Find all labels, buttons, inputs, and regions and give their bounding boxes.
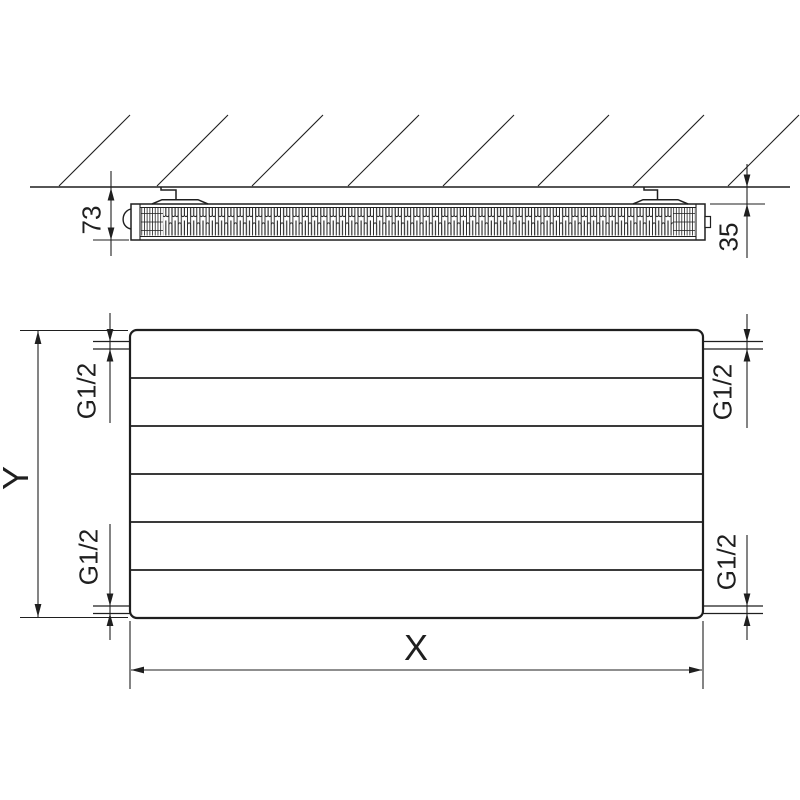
- connection-dimension-bottom-left: G1/2: [74, 524, 114, 640]
- connection-dimension-top-right: G1/2: [708, 314, 751, 428]
- arrow-up-icon: [35, 331, 42, 344]
- right-end-connection-tab: [705, 217, 711, 228]
- stub-top-left: [93, 342, 130, 350]
- arrow-down-icon: [744, 594, 751, 607]
- side-view: 73 35: [30, 115, 799, 258]
- radiator-technical-drawing: 73 35 G1/2: [0, 0, 800, 800]
- arrow-left-icon: [131, 667, 144, 674]
- dimension-wall-distance-35: 35: [710, 164, 765, 258]
- stub-bottom-right: [703, 606, 763, 614]
- thread-size-label: G1/2: [712, 534, 742, 590]
- hatch-lines: [59, 115, 799, 186]
- stub-top-right: [703, 342, 763, 350]
- dimension-width-x: X: [130, 621, 703, 689]
- arrow-right-icon: [689, 667, 702, 674]
- thread-size-label: G1/2: [72, 363, 102, 419]
- arrow-up-icon: [744, 614, 751, 627]
- dimension-height-y: Y: [0, 331, 128, 618]
- width-value: X: [404, 627, 428, 668]
- convector-fins: [141, 208, 695, 236]
- wall-hatching: [30, 115, 799, 187]
- arrow-down-icon: [744, 175, 751, 188]
- dimension-depth-73: 73: [77, 171, 129, 256]
- mounting-bracket-right: [633, 187, 688, 204]
- arrow-down-icon: [744, 329, 751, 342]
- arrow-up-icon: [744, 204, 751, 217]
- height-value: Y: [0, 466, 36, 490]
- end-fin-grid-right: [673, 208, 695, 236]
- depth-value: 73: [77, 206, 107, 235]
- arrow-down-icon: [107, 594, 114, 607]
- arrow-up-icon: [744, 349, 751, 362]
- thread-size-label: G1/2: [74, 529, 104, 585]
- arrow-up-icon: [108, 188, 115, 201]
- front-view: G1/2 G1/2 G1/2 G1/2 Y: [0, 313, 763, 689]
- end-fin-grid-left: [141, 208, 163, 236]
- mounting-bracket-left: [152, 187, 208, 204]
- left-end-bulge: [123, 209, 131, 229]
- arrow-up-icon: [107, 349, 114, 362]
- drawing-svg: 73 35 G1/2: [0, 0, 800, 800]
- arrow-down-icon: [108, 228, 115, 241]
- wall-distance-value: 35: [714, 223, 744, 252]
- radiator-body-front-view: [130, 330, 703, 618]
- connection-dimension-bottom-right: G1/2: [712, 534, 751, 640]
- arrow-up-icon: [107, 614, 114, 627]
- stub-bottom-left: [93, 606, 130, 614]
- thread-size-label: G1/2: [708, 364, 738, 420]
- arrow-down-icon: [35, 604, 42, 617]
- radiator-body-top-view: [123, 204, 710, 240]
- connection-dimension-top-left: G1/2: [72, 313, 114, 423]
